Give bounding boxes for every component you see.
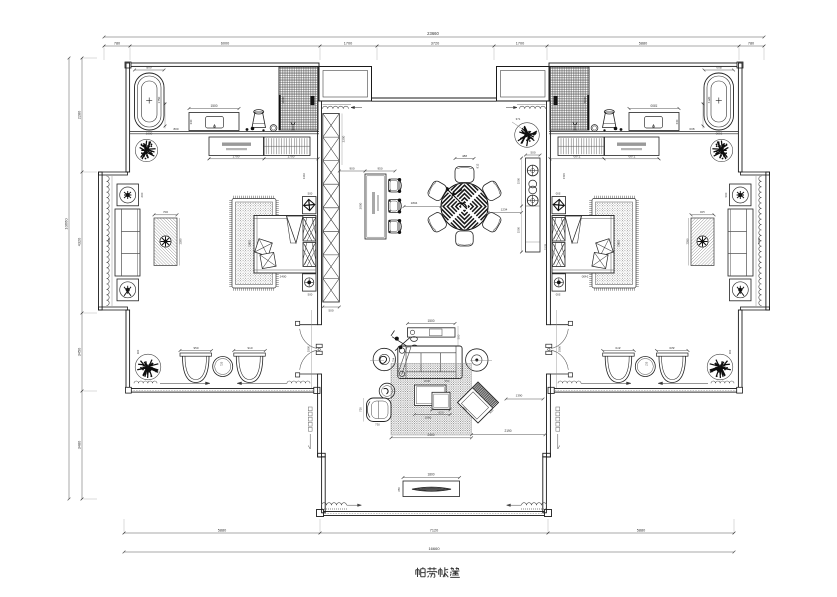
svg-text:23660: 23660 — [427, 31, 439, 36]
svg-text:4320: 4320 — [78, 238, 82, 246]
svg-text:1700: 1700 — [573, 155, 580, 159]
svg-text:1700: 1700 — [344, 42, 352, 46]
svg-text:1310: 1310 — [302, 172, 306, 179]
svg-text:780: 780 — [114, 42, 120, 46]
svg-text:3480: 3480 — [78, 441, 82, 449]
svg-text:7120: 7120 — [430, 529, 438, 533]
svg-text:5880: 5880 — [637, 529, 645, 533]
svg-text:1750: 1750 — [707, 96, 711, 103]
svg-text:1700: 1700 — [232, 155, 239, 159]
svg-text:300: 300 — [728, 349, 732, 354]
svg-text:300: 300 — [136, 349, 140, 354]
svg-text:2400: 2400 — [280, 275, 287, 279]
svg-text:500: 500 — [555, 293, 560, 297]
svg-text:3450: 3450 — [78, 348, 82, 356]
svg-text:950: 950 — [377, 166, 382, 170]
svg-text:488: 488 — [462, 154, 467, 158]
svg-text:800: 800 — [146, 66, 152, 70]
svg-text:500: 500 — [555, 191, 560, 195]
svg-text:754: 754 — [392, 357, 396, 362]
svg-text:5880: 5880 — [218, 529, 226, 533]
svg-text:500: 500 — [457, 334, 461, 339]
svg-text:1750: 1750 — [157, 96, 161, 103]
svg-text:1800: 1800 — [427, 473, 434, 477]
svg-text:6000: 6000 — [221, 42, 229, 46]
svg-text:500: 500 — [308, 293, 313, 297]
svg-text:620: 620 — [438, 411, 443, 415]
svg-text:330: 330 — [189, 119, 193, 124]
svg-text:2000: 2000 — [281, 96, 285, 103]
svg-text:1804: 1804 — [411, 201, 418, 205]
svg-text:1700: 1700 — [516, 42, 524, 46]
svg-text:950: 950 — [193, 346, 198, 350]
svg-text:800: 800 — [173, 127, 178, 131]
svg-text:1700: 1700 — [287, 155, 294, 159]
svg-text:2000: 2000 — [359, 202, 363, 209]
svg-text:2280: 2280 — [78, 111, 82, 119]
svg-text:1390: 1390 — [516, 394, 523, 398]
svg-text:1500: 1500 — [650, 104, 657, 108]
svg-text:2400: 2400 — [581, 275, 588, 279]
svg-text:700: 700 — [163, 210, 168, 214]
svg-text:2100: 2100 — [757, 237, 761, 244]
svg-text:950: 950 — [669, 346, 674, 350]
svg-text:1700: 1700 — [628, 155, 635, 159]
svg-text:1900: 1900 — [307, 345, 311, 352]
svg-text:800: 800 — [716, 66, 722, 70]
svg-text:1380: 1380 — [179, 238, 183, 245]
svg-text:1380: 1380 — [686, 238, 690, 245]
svg-text:2100: 2100 — [107, 237, 111, 244]
svg-text:1500: 1500 — [517, 226, 521, 233]
svg-text:780: 780 — [748, 42, 754, 46]
svg-text:1500: 1500 — [427, 319, 434, 323]
svg-text:1310: 1310 — [562, 172, 566, 179]
svg-text:1500: 1500 — [517, 177, 521, 184]
svg-text:910: 910 — [247, 346, 252, 350]
svg-text:812: 812 — [476, 163, 480, 168]
svg-text:3129: 3129 — [544, 243, 548, 250]
svg-text:350: 350 — [397, 487, 401, 492]
svg-text:10660: 10660 — [64, 218, 69, 230]
svg-text:16660: 16660 — [428, 546, 440, 551]
svg-text:2000: 2000 — [583, 96, 587, 103]
svg-text:1060: 1060 — [425, 415, 432, 419]
svg-text:730: 730 — [375, 423, 380, 427]
svg-text:1500: 1500 — [210, 104, 217, 108]
svg-text:1234: 1234 — [501, 208, 508, 212]
svg-text:500: 500 — [530, 151, 535, 155]
svg-text:910: 910 — [615, 346, 620, 350]
svg-text:800: 800 — [689, 127, 694, 131]
svg-text:371: 371 — [516, 117, 521, 121]
svg-text:900: 900 — [349, 166, 354, 170]
svg-text:720: 720 — [359, 407, 363, 412]
svg-text:1900: 1900 — [248, 240, 252, 247]
svg-text:500: 500 — [308, 191, 313, 195]
svg-text:2400: 2400 — [427, 433, 434, 437]
svg-text:500: 500 — [328, 309, 333, 313]
svg-text:725: 725 — [220, 361, 224, 366]
svg-text:330: 330 — [675, 119, 679, 124]
svg-text:1900: 1900 — [617, 240, 621, 247]
svg-text:3720: 3720 — [431, 42, 439, 46]
svg-text:725: 725 — [644, 361, 648, 366]
svg-text:5880: 5880 — [639, 42, 647, 46]
svg-text:2190: 2190 — [504, 429, 511, 433]
svg-text:600: 600 — [140, 192, 144, 197]
svg-text:700: 700 — [700, 210, 705, 214]
svg-text:600: 600 — [724, 192, 728, 197]
svg-text:1900: 1900 — [558, 345, 562, 352]
